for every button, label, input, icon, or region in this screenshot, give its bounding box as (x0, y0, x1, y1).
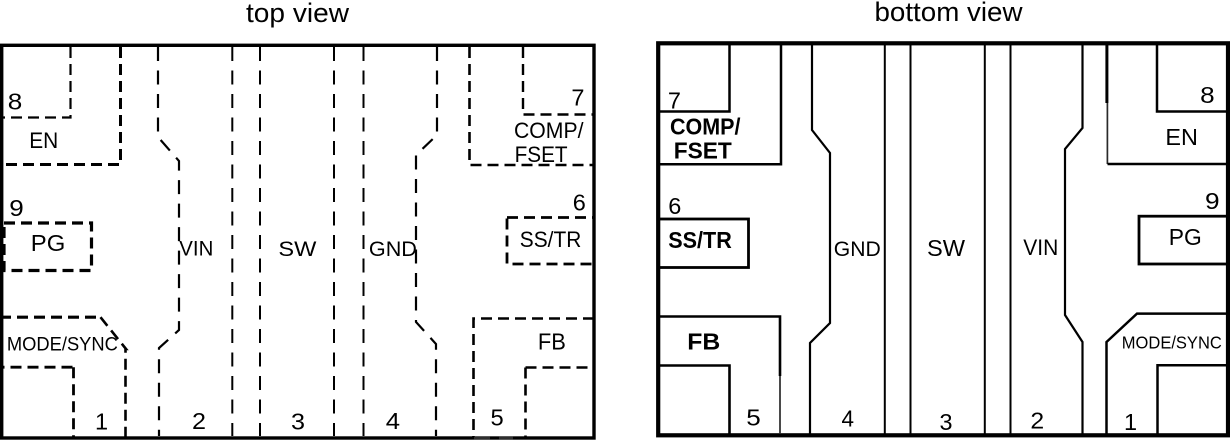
svg-text:6: 6 (573, 190, 586, 216)
svg-text:2: 2 (192, 408, 206, 434)
svg-text:EN: EN (1165, 124, 1198, 150)
svg-text:SW: SW (927, 235, 965, 261)
svg-text:8: 8 (1200, 82, 1215, 108)
svg-text:7: 7 (571, 85, 584, 111)
svg-text:SW: SW (278, 237, 317, 261)
svg-text:GND: GND (834, 238, 881, 261)
svg-text:top view: top view (246, 0, 350, 28)
svg-text:MODE/SYNC: MODE/SYNC (7, 334, 118, 356)
svg-text:1: 1 (1124, 409, 1137, 435)
svg-text:bottom view: bottom view (875, 0, 1024, 27)
svg-text:MODE/SYNC: MODE/SYNC (1122, 333, 1222, 353)
svg-text:FSET: FSET (674, 138, 732, 164)
svg-text:1: 1 (95, 409, 108, 435)
svg-text:3: 3 (291, 409, 305, 435)
svg-text:COMP/: COMP/ (514, 118, 584, 143)
svg-text:5: 5 (491, 405, 504, 431)
svg-text:7: 7 (668, 88, 681, 114)
svg-text:8: 8 (8, 89, 22, 115)
svg-text:VIN: VIN (179, 237, 213, 261)
svg-text:SS/TR: SS/TR (520, 227, 582, 252)
svg-text:FSET: FSET (515, 142, 568, 167)
svg-text:FB: FB (538, 328, 566, 354)
svg-text:PG: PG (31, 230, 66, 256)
svg-text:SS/TR: SS/TR (668, 227, 732, 253)
svg-text:9: 9 (1205, 188, 1220, 214)
svg-text:9: 9 (9, 195, 23, 221)
svg-text:FB: FB (687, 328, 720, 354)
svg-text:4: 4 (386, 408, 400, 434)
svg-text:2: 2 (1030, 408, 1044, 434)
svg-text:EN: EN (29, 128, 58, 153)
svg-text:4: 4 (842, 406, 855, 432)
svg-text:5: 5 (746, 405, 761, 431)
svg-text:GND: GND (369, 238, 417, 261)
svg-text:3: 3 (940, 409, 953, 435)
svg-text:6: 6 (668, 193, 681, 219)
svg-text:VIN: VIN (1023, 235, 1058, 260)
svg-text:PG: PG (1169, 224, 1202, 250)
svg-text:COMP/: COMP/ (670, 114, 741, 140)
